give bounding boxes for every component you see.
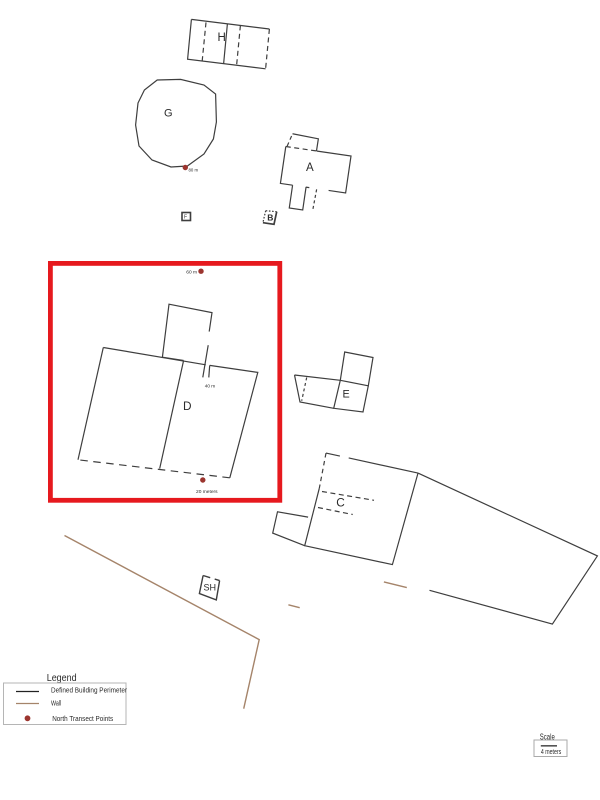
svg-text:Legend: Legend bbox=[47, 672, 77, 684]
svg-text:H: H bbox=[218, 32, 226, 44]
svg-text:Defined Building Perimeter: Defined Building Perimeter bbox=[51, 686, 127, 695]
svg-text:G: G bbox=[164, 108, 173, 120]
svg-text:Wall: Wall bbox=[51, 699, 61, 708]
svg-text:60 m: 60 m bbox=[186, 269, 197, 275]
svg-text:40 m: 40 m bbox=[205, 384, 215, 390]
svg-text:80 m: 80 m bbox=[189, 167, 199, 173]
svg-text:E: E bbox=[343, 389, 350, 401]
svg-text:North Transect Points: North Transect Points bbox=[52, 714, 113, 723]
svg-text:C: C bbox=[336, 495, 345, 509]
svg-text:SH: SH bbox=[204, 582, 217, 593]
svg-text:B: B bbox=[267, 212, 273, 222]
svg-text:D: D bbox=[183, 399, 192, 413]
svg-text:20 meters: 20 meters bbox=[196, 489, 218, 495]
svg-text:A: A bbox=[306, 162, 314, 174]
svg-text:F: F bbox=[184, 215, 187, 221]
svg-text:4 meters: 4 meters bbox=[541, 749, 562, 756]
